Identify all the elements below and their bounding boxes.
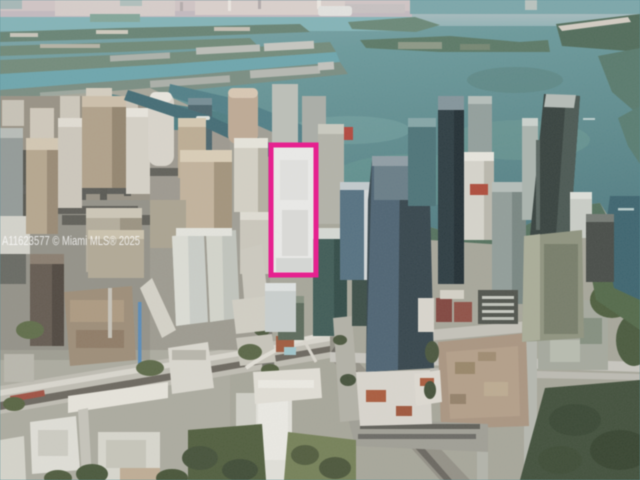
- svg-text:A11623577 © Miami MLS® 2025: A11623577 © Miami MLS® 2025: [2, 234, 140, 248]
